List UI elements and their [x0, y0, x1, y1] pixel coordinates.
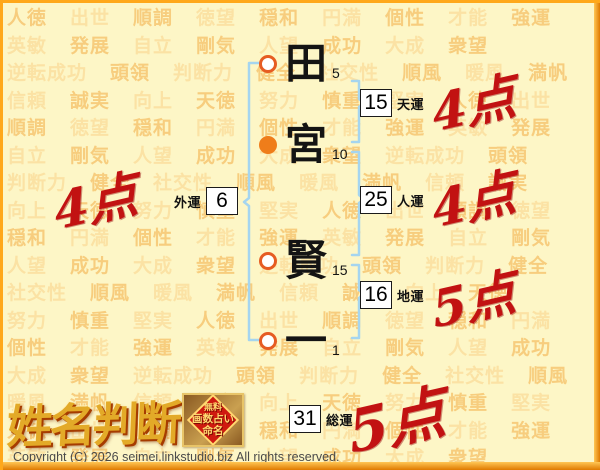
char-marker-icon	[259, 55, 277, 73]
stroke-count: 15	[332, 262, 348, 278]
stroke-count: 1	[332, 342, 340, 358]
chiun-value-box: 16	[360, 281, 392, 309]
free-naming-badge: 無料 画数占い 命名	[182, 393, 244, 447]
gaiun-fortune: 外運 6	[174, 187, 238, 215]
char-marker-icon	[259, 136, 277, 154]
name-character: 田	[285, 41, 327, 87]
site-logo-title: 姓名判断	[6, 387, 181, 458]
stroke-count: 5	[332, 65, 340, 81]
name-char-row-3: 賢 15	[259, 238, 348, 284]
name-char-row-4: 一 1	[259, 318, 340, 364]
badge-text: 無料 画数占い 命名	[184, 395, 242, 445]
name-char-row-2: 宮 10	[259, 122, 348, 168]
gaiun-label: 外運	[174, 192, 201, 211]
char-marker-icon	[259, 252, 277, 270]
tenun-label: 天運	[397, 94, 424, 113]
name-character: 賢	[285, 238, 327, 284]
jinun-value-box: 25	[360, 186, 392, 214]
soun-fortune: 31 総運	[289, 405, 353, 433]
stroke-count: 10	[332, 146, 348, 162]
tenun-fortune: 15 天運	[360, 89, 424, 117]
soun-value-box: 31	[289, 405, 321, 433]
seimei-handan-result-page: 人徳出世順調徳望穏和円満個性才能強運英敏発展自立剛気人望成功大成衆望逆転成功頭領…	[0, 0, 600, 470]
frame-border-bottom	[3, 462, 600, 470]
chiun-fortune: 16 地運	[360, 281, 424, 309]
badge-line2: 画数占い	[192, 413, 234, 426]
badge-line3: 命名	[203, 425, 224, 438]
jinun-label: 人運	[397, 191, 424, 210]
chiun-label: 地運	[397, 286, 424, 305]
badge-line1: 無料	[204, 402, 222, 413]
name-character: 宮	[285, 122, 327, 168]
frame-border-right	[594, 3, 600, 470]
tenun-value-box: 15	[360, 89, 392, 117]
gaiun-value-box: 6	[206, 187, 238, 215]
name-char-row-1: 田 5	[259, 41, 340, 87]
name-character: 一	[285, 318, 327, 364]
jinun-fortune: 25 人運	[360, 186, 424, 214]
char-marker-icon	[259, 332, 277, 350]
